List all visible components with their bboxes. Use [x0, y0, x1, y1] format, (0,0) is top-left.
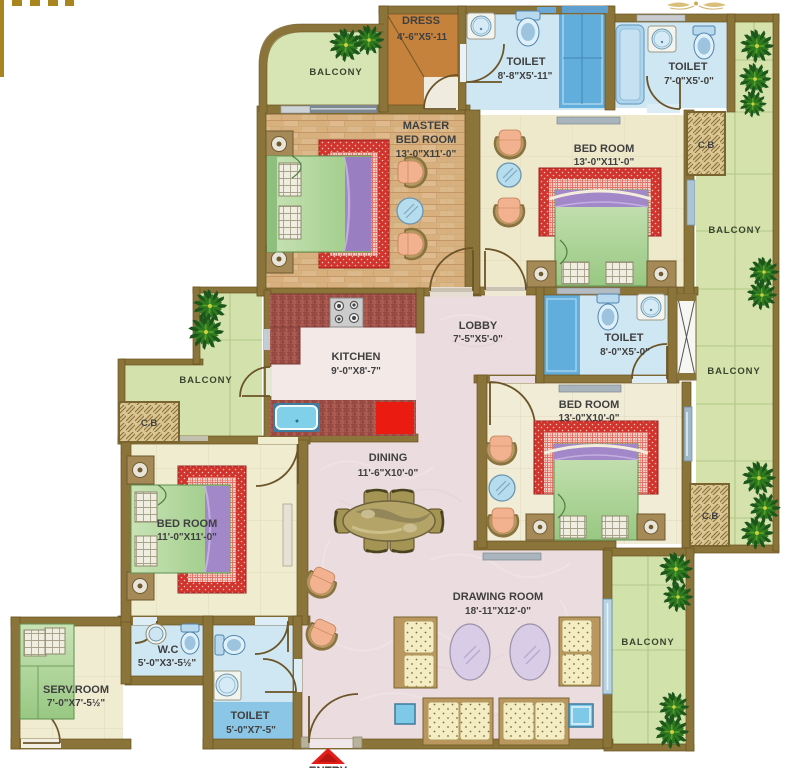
svg-text:9'-0"X8'-7": 9'-0"X8'-7" [331, 366, 381, 377]
svg-text:11'-0"X11'-0": 11'-0"X11'-0" [157, 532, 217, 543]
svg-text:8'-8"X5'-11": 8'-8"X5'-11" [498, 71, 553, 82]
svg-text:BALCONY: BALCONY [309, 67, 362, 78]
svg-text:7'-5"X5'-0": 7'-5"X5'-0" [453, 334, 503, 345]
svg-text:C.B: C.B [702, 511, 719, 522]
svg-text:TOILET: TOILET [231, 710, 270, 722]
svg-text:7'-0"X7'-5½": 7'-0"X7'-5½" [47, 698, 105, 709]
svg-text:C.B: C.B [698, 140, 715, 151]
svg-text:TOILET: TOILET [605, 332, 644, 344]
svg-text:7'-0"X5'-0": 7'-0"X5'-0" [664, 76, 714, 87]
svg-text:KITCHEN: KITCHEN [332, 351, 381, 363]
svg-text:8'-0"X5'-0": 8'-0"X5'-0" [600, 347, 650, 358]
svg-text:18'-11"X12'-0": 18'-11"X12'-0" [465, 606, 531, 617]
svg-text:BALCONY: BALCONY [621, 637, 674, 648]
svg-text:11'-6"X10'-0": 11'-6"X10'-0" [358, 468, 419, 479]
svg-text:BED ROOM: BED ROOM [559, 399, 620, 411]
svg-text:TOILET: TOILET [507, 56, 546, 68]
svg-text:BALCONY: BALCONY [708, 225, 761, 236]
svg-text:5'-0"X7'-5": 5'-0"X7'-5" [226, 725, 276, 736]
svg-text:W.C: W.C [158, 644, 179, 656]
svg-text:BED ROOM: BED ROOM [396, 134, 457, 146]
svg-text:5'-0"X3'-5½": 5'-0"X3'-5½" [138, 658, 196, 669]
svg-text:TOILET: TOILET [669, 61, 708, 73]
svg-text:DINING: DINING [369, 452, 408, 464]
svg-text:LOBBY: LOBBY [459, 320, 498, 332]
svg-text:SERV.ROOM: SERV.ROOM [43, 684, 109, 696]
svg-text:BALCONY: BALCONY [179, 375, 232, 386]
svg-text:BALCONY: BALCONY [707, 366, 760, 377]
svg-text:DRESS: DRESS [402, 15, 440, 27]
svg-text:13'-0"X11'-0": 13'-0"X11'-0" [574, 157, 635, 168]
svg-text:13'-0"X10'-0": 13'-0"X10'-0" [559, 413, 620, 424]
svg-text:C.B: C.B [141, 418, 158, 429]
svg-text:DRAWING ROOM: DRAWING ROOM [453, 591, 543, 603]
svg-text:4'-6"X5'-11: 4'-6"X5'-11 [397, 32, 448, 43]
svg-text:BED ROOM: BED ROOM [157, 518, 218, 530]
svg-text:MASTER: MASTER [403, 120, 450, 132]
svg-text:13'-0"X11'-0": 13'-0"X11'-0" [396, 149, 457, 160]
svg-text:BED ROOM: BED ROOM [574, 143, 635, 155]
